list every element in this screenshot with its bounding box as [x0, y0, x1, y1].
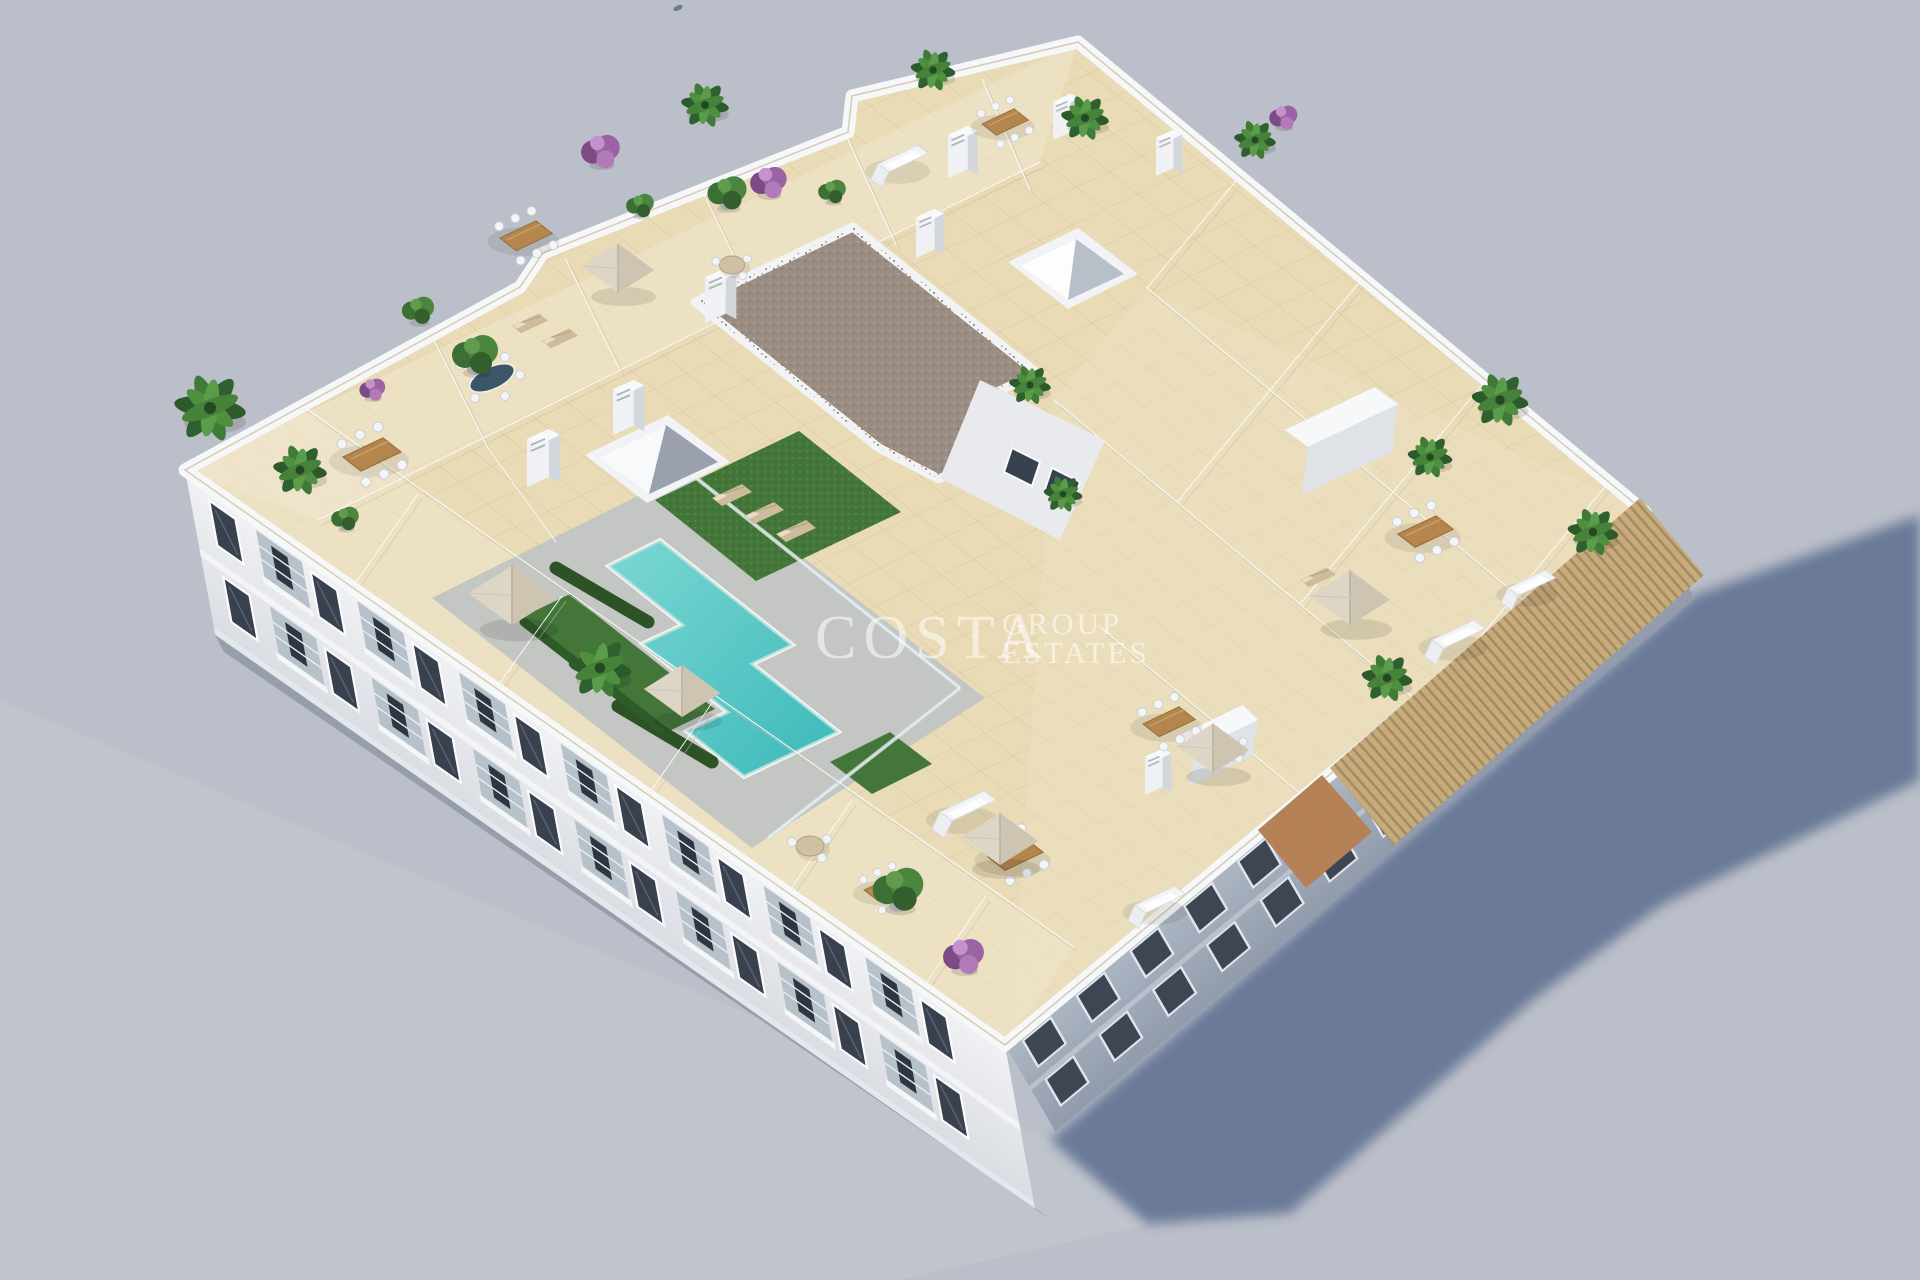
chimney	[948, 126, 978, 178]
chimney	[1156, 130, 1182, 176]
render-stage: COSTA GROUP ESTATES	[0, 0, 1920, 1280]
chimney	[527, 429, 560, 487]
watermark-estates: ESTATES	[1002, 635, 1150, 670]
chimney	[916, 209, 944, 258]
scene-svg: COSTA GROUP ESTATES	[0, 0, 1920, 1280]
watermark: COSTA GROUP ESTATES	[815, 604, 1150, 672]
chimney	[613, 380, 644, 435]
chimney	[1145, 749, 1171, 795]
